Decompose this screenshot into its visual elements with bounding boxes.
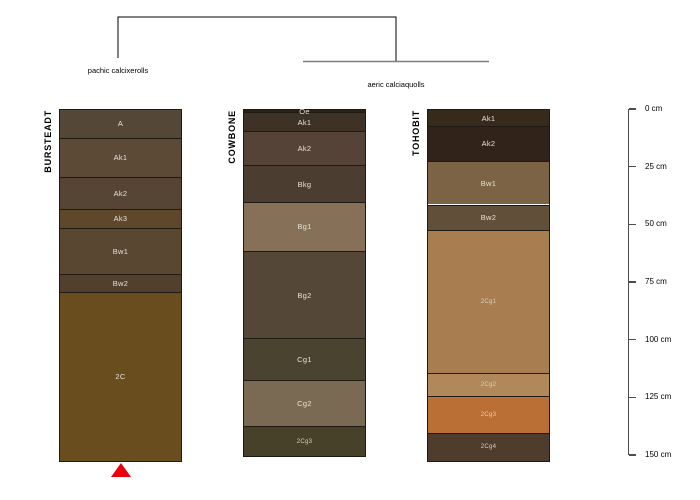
soil-horizon-2cg2: 2Cg2: [428, 373, 549, 396]
profile-name-label: TOHOBIT: [411, 110, 421, 156]
depth-tick: [629, 108, 636, 109]
depth-tick-label: 125 cm: [645, 392, 671, 401]
dendrogram: [0, 0, 700, 100]
soil-horizon-ak1: Ak1: [60, 138, 181, 177]
dendrogram-top-cluster-line: [118, 17, 396, 62]
profile-column-bursteadt: BURSTEADTAAk1Ak2Ak3Bw1Bw22C: [59, 109, 182, 462]
soil-horizon-bg2: Bg2: [244, 251, 365, 339]
soil-horizon-2cg4: 2Cg4: [428, 433, 549, 461]
group-label-pachic-calcixerolls: pachic calcixerolls: [88, 66, 148, 75]
soil-horizon-bkg: Bkg: [244, 165, 365, 202]
soil-horizon-2cg3: 2Cg3: [244, 426, 365, 456]
horizon-label: Ak1: [298, 118, 312, 127]
horizon-label: Oe: [299, 107, 310, 116]
horizon-label: Ak2: [298, 144, 312, 153]
horizon-label: Cg1: [297, 355, 312, 364]
soil-horizon-ak2: Ak2: [244, 131, 365, 166]
soil-horizon-bw2: Bw2: [428, 205, 549, 230]
horizon-label: 2Cg3: [481, 412, 497, 418]
horizon-label: Bw1: [113, 247, 129, 256]
horizon-label: Bw2: [481, 213, 497, 222]
profile-column-tohobit: TOHOBITAk1Ak2Bw1Bw22Cg12Cg22Cg32Cg4: [427, 109, 550, 462]
depth-tick: [629, 339, 636, 340]
figure-canvas: pachic calcixerolls aeric calciaquolls B…: [0, 0, 700, 500]
depth-tick-label: 50 cm: [645, 219, 667, 228]
soil-horizon-2cg1: 2Cg1: [428, 230, 549, 373]
horizon-label: Bw1: [481, 179, 497, 188]
horizon-label: 2Cg2: [481, 382, 497, 388]
soil-horizon-bw2: Bw2: [60, 274, 181, 293]
depth-tick-label: 0 cm: [645, 104, 662, 113]
soil-horizon-ak2: Ak2: [428, 126, 549, 161]
soil-horizon-ak3: Ak3: [60, 209, 181, 228]
soil-horizon-bg1: Bg1: [244, 202, 365, 250]
depth-tick: [629, 224, 636, 225]
depth-tick-label: 100 cm: [645, 335, 671, 344]
group-label-aeric-calciaquolls: aeric calciaquolls: [367, 80, 424, 89]
profile-name-label: BURSTEADT: [43, 110, 53, 173]
soil-horizon-ak1: Ak1: [428, 110, 549, 126]
profile-column-cowbone: COWBONEOeAk1Ak2BkgBg1Bg2Cg1Cg22Cg3: [243, 109, 366, 457]
horizon-label: Bg1: [297, 222, 311, 231]
depth-tick-label: 150 cm: [645, 450, 671, 459]
soil-horizon-cg1: Cg1: [244, 338, 365, 380]
horizon-label: 2Cg4: [481, 444, 497, 450]
horizon-label: Bg2: [297, 291, 311, 300]
horizon-label: 2C: [115, 372, 125, 381]
depth-tick-label: 75 cm: [645, 277, 667, 286]
horizon-label: Ak1: [114, 153, 128, 162]
soil-horizon-a: A: [60, 110, 181, 138]
horizon-label: Ak2: [114, 189, 128, 198]
soil-horizon-2c: 2C: [60, 292, 181, 460]
depth-tick: [629, 166, 636, 167]
horizon-label: Bkg: [298, 180, 312, 189]
soil-horizon-bw1: Bw1: [428, 161, 549, 205]
depth-axis: 0 cm25 cm50 cm75 cm100 cm125 cm150 cm: [628, 109, 689, 455]
horizon-label: Bw2: [113, 279, 129, 288]
soil-horizon-ak2: Ak2: [60, 177, 181, 209]
horizon-label: Ak2: [482, 139, 496, 148]
depth-tick: [629, 454, 636, 455]
horizon-label: Cg2: [297, 399, 312, 408]
soil-horizon-2cg3: 2Cg3: [428, 396, 549, 433]
depth-tick: [629, 397, 636, 398]
depth-tick-label: 25 cm: [645, 162, 667, 171]
horizon-label: A: [118, 119, 123, 128]
horizon-label: Ak1: [482, 114, 496, 123]
depth-tick: [629, 281, 636, 282]
profile-name-label: COWBONE: [227, 110, 237, 164]
profile-marker-triangle: [111, 463, 131, 477]
soil-horizon-cg2: Cg2: [244, 380, 365, 426]
soil-horizon-bw1: Bw1: [60, 228, 181, 274]
horizon-label: Ak3: [114, 214, 128, 223]
horizon-label: 2Cg1: [481, 299, 497, 305]
horizon-label: 2Cg3: [297, 439, 313, 445]
